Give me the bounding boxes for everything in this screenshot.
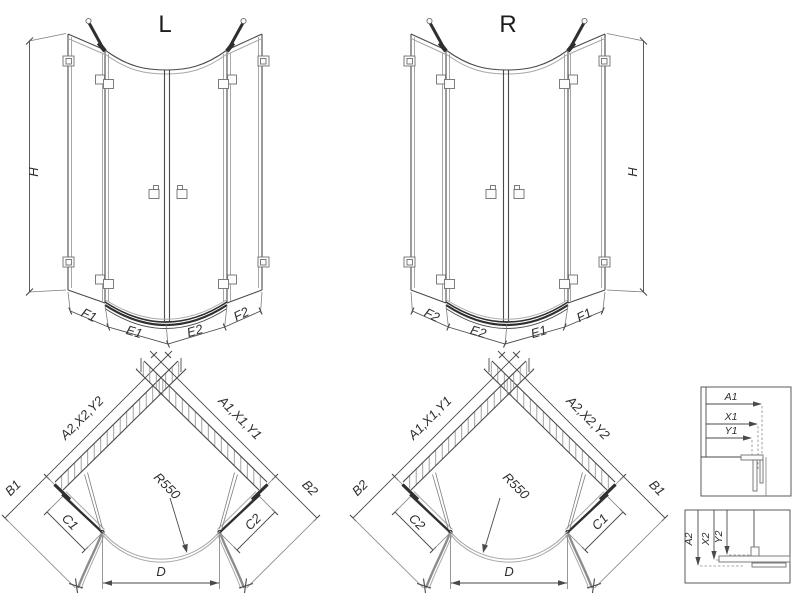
- detail-dim-label: Y1: [725, 425, 738, 437]
- wall-profile-section: [741, 455, 766, 496]
- profile-detail-bottom: A2 X2 Y2: [683, 510, 790, 583]
- c-dim-label: C2: [406, 511, 429, 534]
- wall-dim-label: A2,X2,Y2: [563, 392, 614, 443]
- width-label: D: [504, 564, 513, 579]
- radius-label: R550: [500, 470, 533, 503]
- dim-label: F2: [422, 305, 443, 325]
- wall-dim-label: A2,X2,Y2: [56, 393, 107, 444]
- wall-dim-label: A1,X1,Y1: [215, 392, 265, 442]
- height-label: H: [26, 167, 41, 177]
- shower-enclosure-technical-drawing: L H F1 E1 E2 F2 R H F2 E2 E1 F1 A2,X2,Y2…: [0, 0, 800, 600]
- c-dim-label: C2: [242, 510, 265, 533]
- detail-dim-label: Y2: [713, 530, 725, 543]
- elevation-right-view: [404, 18, 647, 347]
- b-dim-label: B2: [299, 477, 321, 499]
- detail-dim-label: X2: [700, 532, 712, 546]
- dim-label: E2: [185, 321, 205, 340]
- b-dim-label: B2: [349, 476, 371, 498]
- detail-dim-label: A1: [724, 391, 738, 403]
- profile-detail-top: A1 X1 Y1: [701, 387, 791, 496]
- b-dim-label: B1: [2, 477, 24, 499]
- dim-label: E1: [529, 322, 548, 341]
- detail-dim-label: X1: [724, 411, 738, 423]
- elevation-left-view: [26, 18, 269, 347]
- c-dim-label: C1: [589, 511, 611, 533]
- b-dim-label: B1: [646, 477, 668, 499]
- radius-label: R550: [151, 470, 184, 503]
- c-dim-label: C1: [59, 511, 81, 533]
- variant-title-left: L: [158, 11, 171, 38]
- dimension-arrow: [743, 401, 762, 440]
- dim-label: E1: [125, 322, 144, 341]
- wall-dim-label: A1,X1,Y1: [404, 393, 454, 443]
- detail-dim-label: A2: [683, 532, 695, 546]
- dim-label: F2: [231, 304, 252, 324]
- variant-title-right: R: [499, 11, 516, 38]
- height-label: H: [625, 167, 640, 177]
- width-label: D: [156, 564, 165, 579]
- wall-profile-section: [719, 510, 790, 567]
